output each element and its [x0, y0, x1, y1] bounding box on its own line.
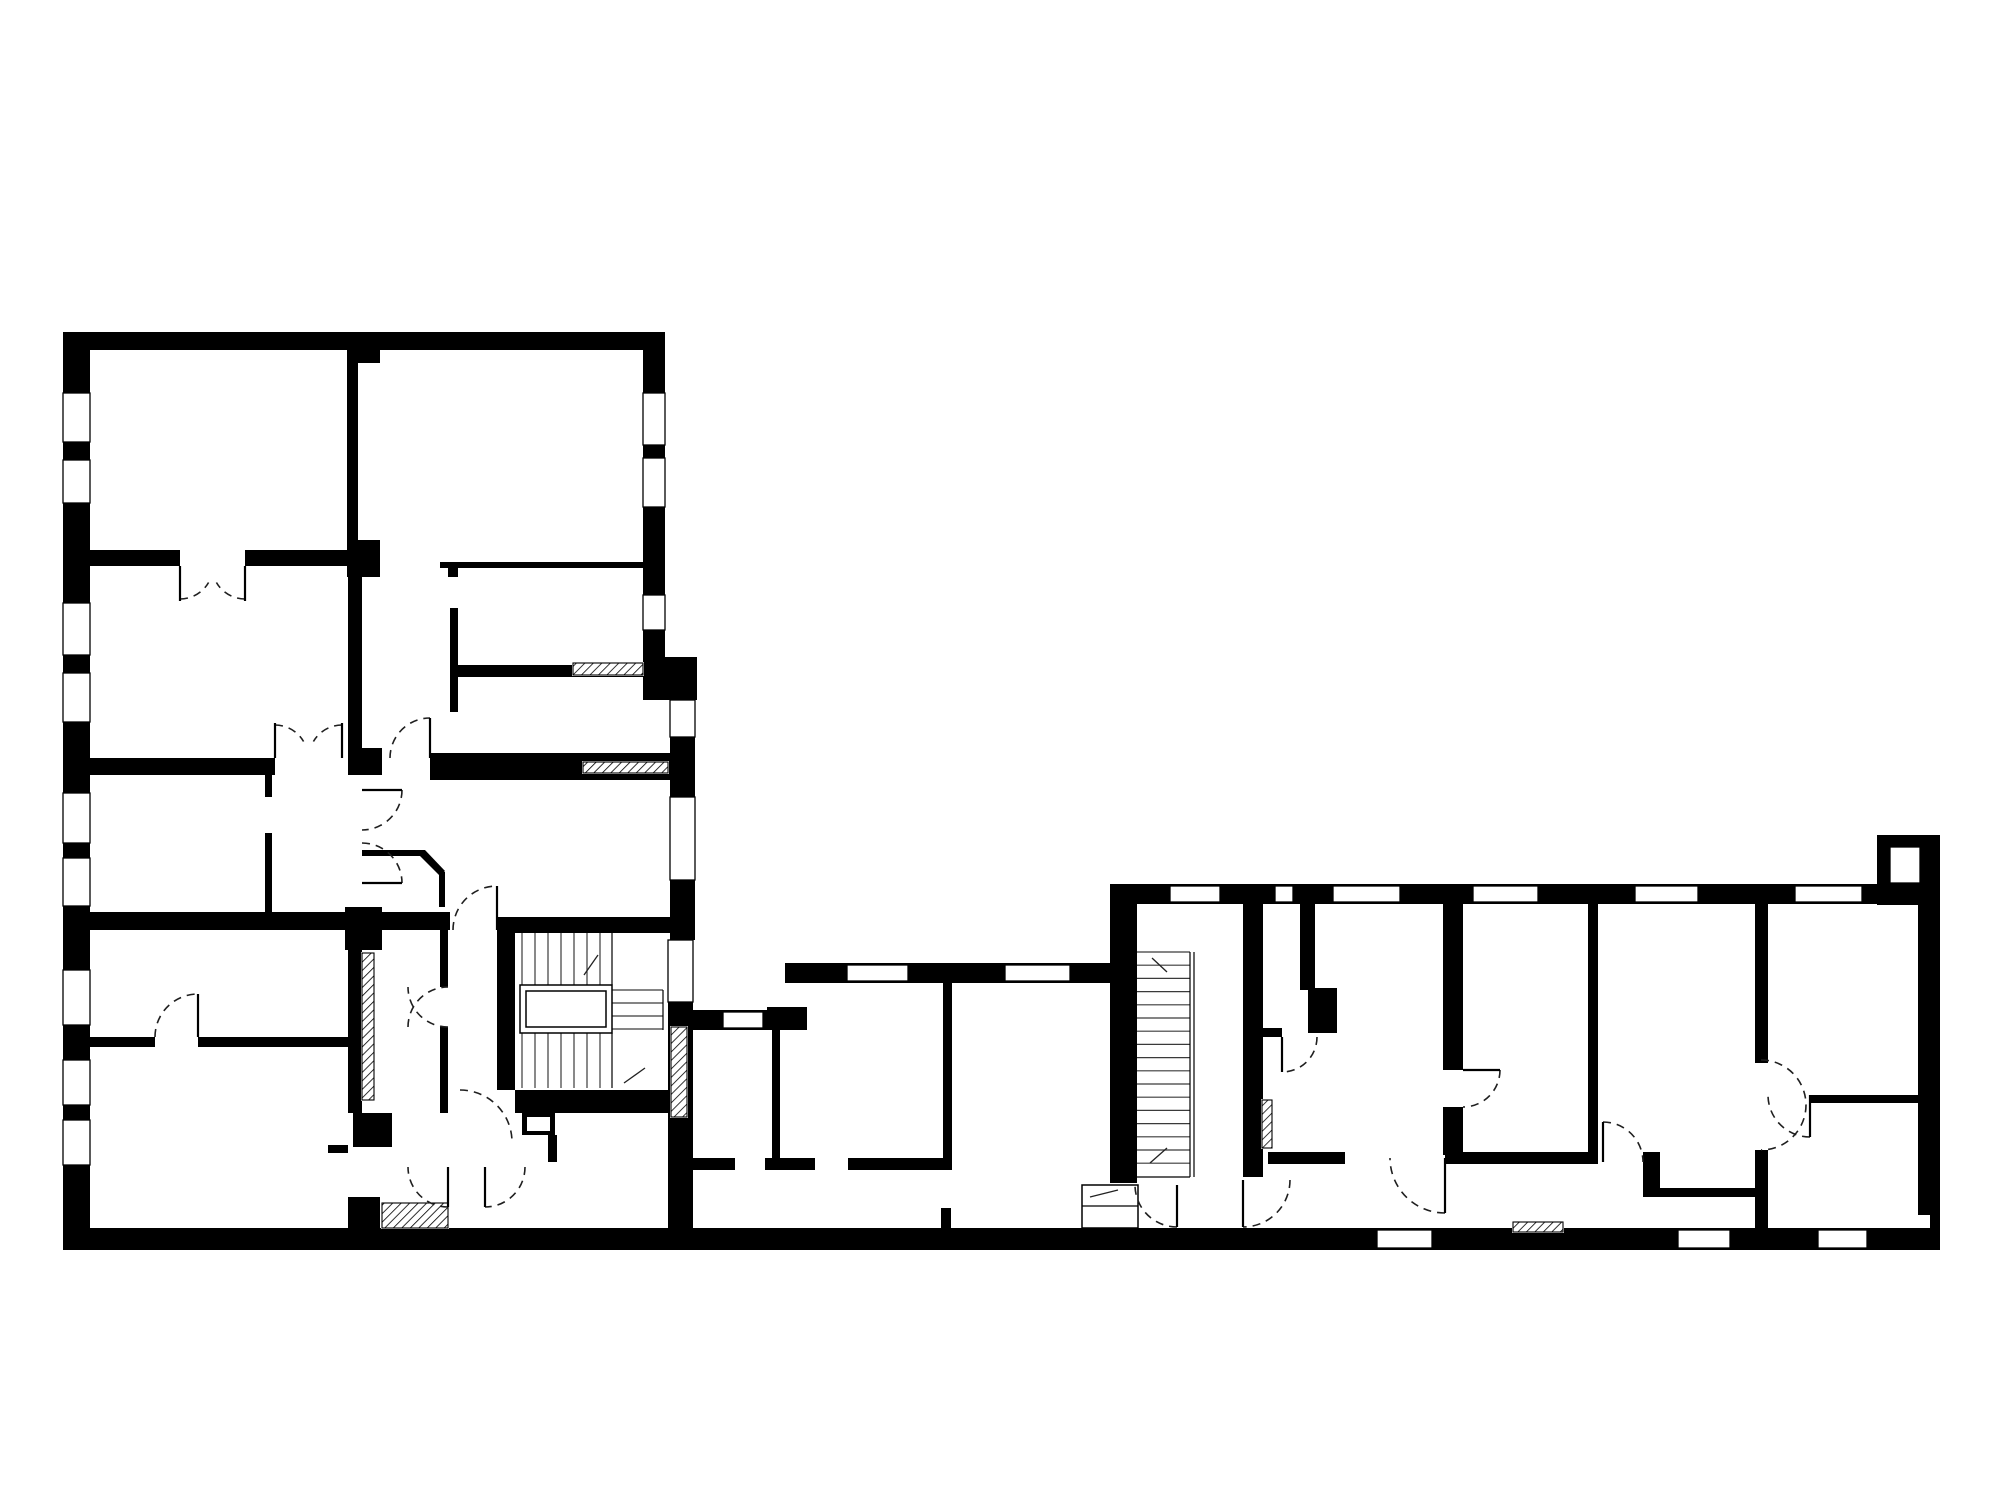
window-opening: [1473, 886, 1538, 902]
wall-segment: [90, 912, 348, 930]
wall-segment: [767, 1007, 807, 1030]
floor-plan-page: [0, 0, 2000, 1500]
window-opening: [643, 595, 665, 630]
window-opening: [643, 393, 665, 445]
window-opening: [1005, 965, 1070, 981]
wall-segment: [353, 1113, 392, 1147]
hatched-vent: [671, 1027, 687, 1117]
wall-segment: [943, 983, 952, 1170]
wall-segment: [63, 1228, 1940, 1250]
wall-segment: [693, 1158, 735, 1170]
wall-segment: [765, 1158, 815, 1170]
window-opening: [63, 858, 90, 906]
wall-segment: [90, 1037, 155, 1047]
window-opening: [1170, 886, 1220, 902]
wall-segment: [439, 872, 445, 907]
wall-segment: [772, 1030, 780, 1158]
wall-segment: [440, 930, 448, 987]
wall-notch: [527, 1117, 550, 1131]
window-opening: [643, 458, 665, 507]
window-opening: [723, 1012, 763, 1028]
window-opening: [63, 603, 90, 655]
wall-segment: [1810, 1095, 1918, 1103]
wall-segment: [448, 568, 458, 577]
hatched-vent: [382, 1203, 448, 1228]
wall-segment: [1260, 1028, 1282, 1037]
wall-notch: [1918, 1215, 1930, 1228]
window-opening: [63, 460, 90, 503]
wall-segment: [362, 850, 425, 856]
hatched-vent: [362, 953, 374, 1100]
wall-segment: [345, 907, 382, 950]
window-opening: [847, 965, 908, 981]
wall-segment: [347, 540, 380, 577]
window-opening: [1333, 886, 1400, 902]
wall-segment: [1918, 904, 1940, 1228]
window-opening: [1818, 1230, 1867, 1248]
wall-segment: [348, 950, 362, 1113]
window-opening: [63, 673, 90, 722]
wall-segment: [1755, 1150, 1768, 1228]
wall-segment: [348, 1197, 380, 1228]
paper-background: [0, 0, 2000, 1500]
hatched-vent: [583, 762, 668, 773]
wall-segment: [440, 562, 647, 568]
wall-segment: [1300, 904, 1315, 990]
wall-segment: [1443, 1107, 1463, 1155]
window-opening: [670, 797, 695, 880]
hatched-vent: [1262, 1100, 1272, 1148]
window-opening: [670, 700, 695, 737]
wall-segment: [497, 917, 693, 933]
window-opening: [1795, 886, 1862, 902]
window-opening: [1275, 886, 1293, 902]
window-opening: [1377, 1230, 1432, 1248]
wall-segment: [1443, 904, 1463, 1070]
wall-segment: [245, 550, 347, 566]
wall-segment: [1643, 1152, 1660, 1197]
wall-segment: [348, 577, 362, 753]
window-opening: [1635, 886, 1698, 902]
wall-segment: [848, 1158, 950, 1170]
wall-segment: [1243, 904, 1263, 1177]
wall-segment: [1268, 1152, 1345, 1164]
window-opening: [1890, 847, 1920, 883]
wall-segment: [347, 350, 358, 542]
window-opening: [668, 940, 693, 1002]
wall-segment: [265, 833, 272, 912]
wall-segment: [348, 748, 382, 775]
window-opening: [63, 1120, 90, 1165]
window-opening: [63, 1060, 90, 1105]
window-opening: [63, 393, 90, 442]
hatched-vent: [1513, 1222, 1563, 1232]
hatched-vent: [573, 663, 643, 675]
wall-segment: [1588, 904, 1598, 1157]
wall-segment: [440, 1027, 448, 1113]
wall-segment: [1445, 1152, 1598, 1164]
wall-segment: [1110, 904, 1137, 1183]
wall-segment: [450, 608, 458, 712]
wall-segment: [548, 1135, 557, 1162]
wall-segment: [90, 758, 275, 775]
wall-segment: [497, 933, 515, 1090]
wall-segment: [1308, 988, 1337, 1033]
window-opening: [63, 793, 90, 843]
stair-landing: [526, 991, 606, 1027]
wall-segment: [382, 912, 450, 930]
floor-plan-drawing: [0, 0, 2000, 1500]
wall-segment: [515, 1090, 693, 1113]
wall-segment: [328, 1145, 348, 1153]
wall-segment: [1755, 904, 1768, 1063]
wall-segment: [198, 1037, 348, 1047]
window-opening: [63, 970, 90, 1025]
wall-segment: [265, 775, 272, 797]
wall-segment: [643, 657, 697, 700]
wall-segment: [90, 550, 180, 566]
wall-segment: [1660, 1188, 1757, 1197]
wall-segment: [941, 1208, 951, 1228]
window-opening: [1678, 1230, 1730, 1248]
